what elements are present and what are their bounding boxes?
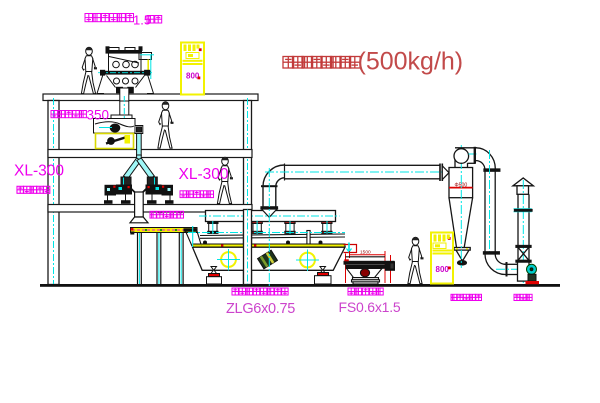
svg-text:1500: 1500: [360, 250, 371, 256]
svg-text:350: 350: [87, 108, 110, 123]
svg-text:800: 800: [436, 265, 450, 274]
svg-text:ZLG6x0.75: ZLG6x0.75: [226, 301, 295, 317]
svg-text:Φ500: Φ500: [455, 183, 468, 189]
svg-text:FS0.6x1.5: FS0.6x1.5: [339, 299, 401, 315]
svg-text:XL-300: XL-300: [14, 163, 64, 180]
svg-text:(500kg/h): (500kg/h): [358, 48, 464, 76]
svg-text:XL-300: XL-300: [179, 166, 229, 183]
svg-text:1.5: 1.5: [133, 13, 151, 28]
